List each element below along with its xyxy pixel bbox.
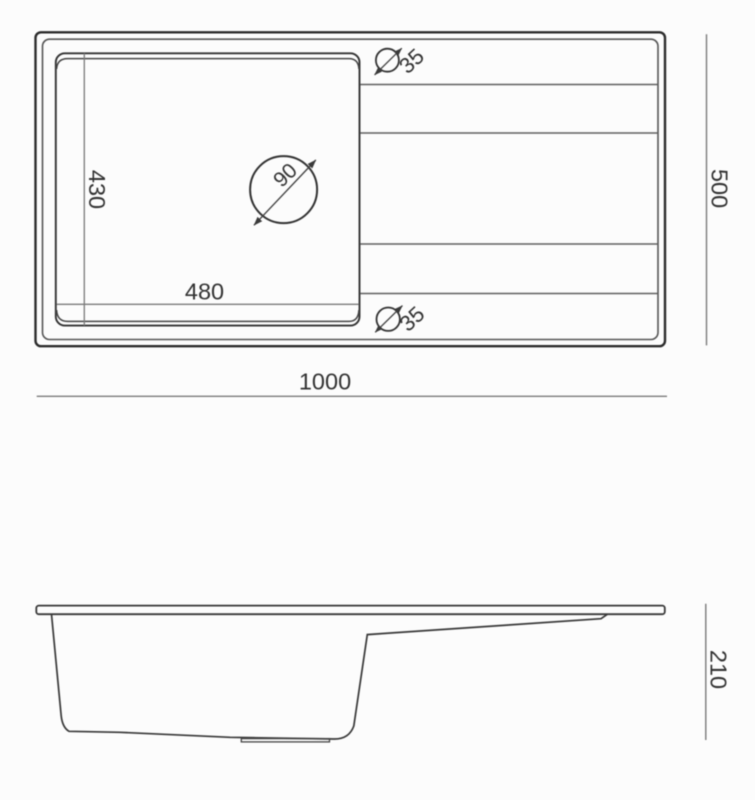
svg-text:500: 500 bbox=[707, 169, 733, 208]
svg-text:1000: 1000 bbox=[299, 369, 351, 395]
svg-text:430: 430 bbox=[84, 170, 110, 209]
svg-text:210: 210 bbox=[706, 650, 732, 689]
svg-text:480: 480 bbox=[185, 279, 224, 305]
